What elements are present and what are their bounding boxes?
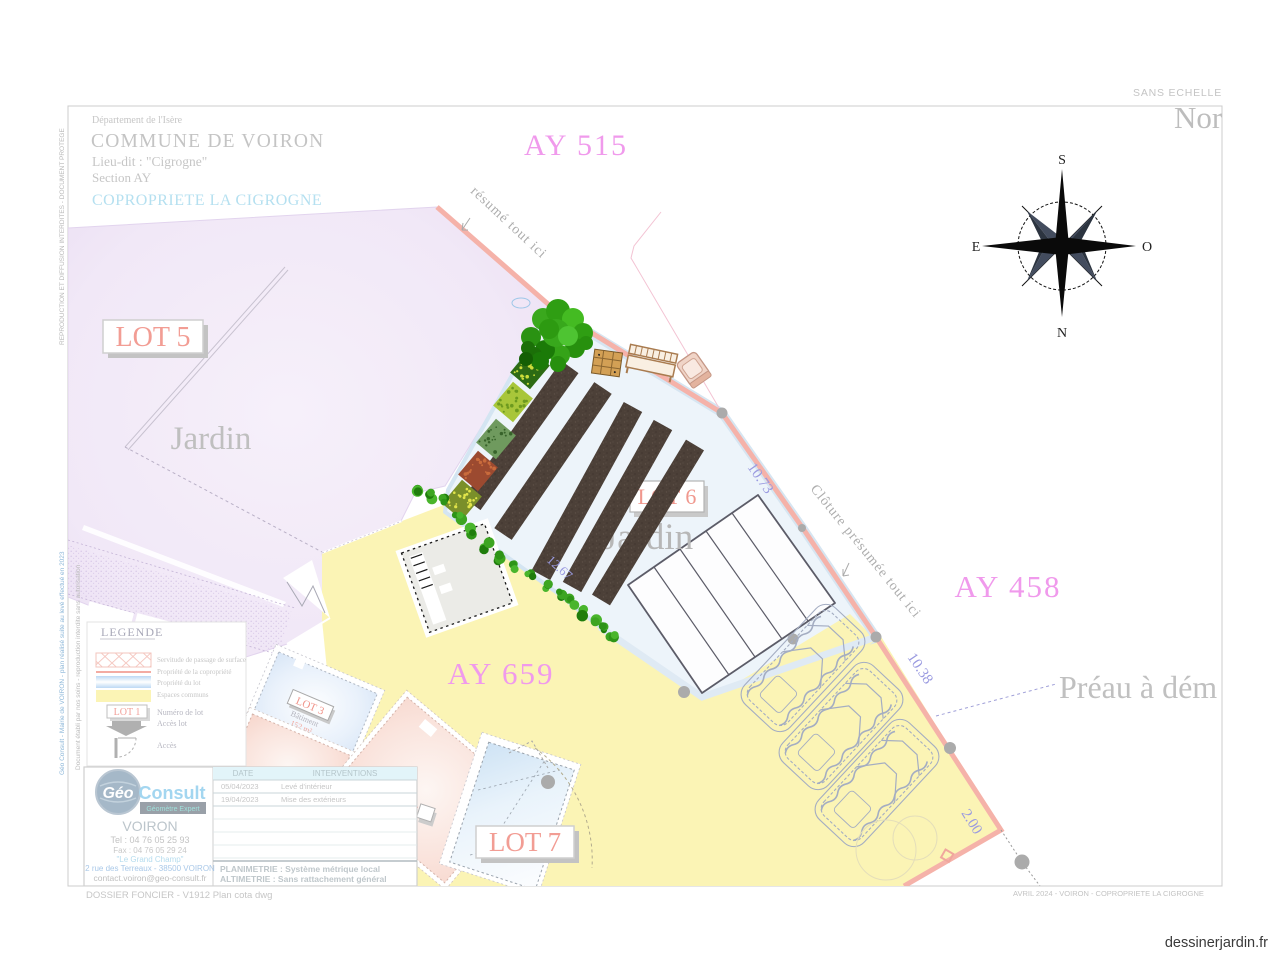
svg-text:E: E — [972, 240, 981, 255]
svg-text:COMMUNE DE VOIRON: COMMUNE DE VOIRON — [91, 131, 324, 152]
svg-text:LOT 7: LOT 7 — [489, 827, 561, 857]
svg-text:Espaces communs: Espaces communs — [157, 691, 209, 699]
svg-text:O: O — [1142, 240, 1152, 255]
svg-text:COPROPRIETE LA CIGROGNE: COPROPRIETE LA CIGROGNE — [92, 192, 322, 209]
svg-text:DOSSIER FONCIER - V1912 Plan: DOSSIER FONCIER - V1912 Plan cota dwg — [86, 890, 272, 901]
svg-text:AY 458: AY 458 — [954, 569, 1061, 604]
svg-text:dessinerjardin.fr: dessinerjardin.fr — [1165, 935, 1268, 951]
svg-text:Consult: Consult — [139, 783, 206, 803]
svg-text:Préau à dém: Préau à dém — [1059, 669, 1217, 705]
svg-text:"Le Grand Champ": "Le Grand Champ" — [116, 855, 183, 864]
svg-text:Document établi par nos soins: Document établi par nos soins - reproduc… — [75, 564, 82, 770]
svg-text:05/04/2023: 05/04/2023 — [221, 782, 259, 791]
svg-text:Fax : 04 76 05 29 24: Fax : 04 76 05 29 24 — [113, 846, 187, 855]
svg-text:Propriété du lot: Propriété du lot — [157, 679, 201, 687]
svg-text:Section AY: Section AY — [92, 170, 152, 185]
svg-text:SANS ECHELLE: SANS ECHELLE — [1133, 87, 1222, 99]
svg-text:DATE: DATE — [233, 769, 254, 778]
svg-text:contact.voiron@geo-consult.fr: contact.voiron@geo-consult.fr — [93, 873, 206, 883]
svg-text:Géo Consult - Mairie de VOIRON: Géo Consult - Mairie de VOIRON - plan ré… — [59, 551, 66, 775]
svg-text:Géo: Géo — [102, 785, 133, 802]
svg-text:VOIRON: VOIRON — [122, 818, 177, 834]
svg-text:ALTIMETRIE : Sans rattachemen: ALTIMETRIE : Sans rattachement général — [220, 874, 387, 884]
svg-text:Géomètre Expert: Géomètre Expert — [146, 806, 199, 813]
svg-text:AY 659: AY 659 — [447, 656, 554, 691]
svg-text:2 rue des Terreaux - 38500 VOI: 2 rue des Terreaux - 38500 VOIRON — [85, 864, 215, 873]
svg-text:Propriété de la copropriété: Propriété de la copropriété — [157, 668, 231, 676]
svg-text:AY 515: AY 515 — [524, 129, 628, 162]
svg-text:S: S — [1058, 153, 1066, 168]
svg-text:Servitude de passage de surfac: Servitude de passage de surface — [157, 656, 246, 664]
svg-text:Jardin: Jardin — [171, 421, 252, 457]
svg-text:Tel : 04 76 05 25 93: Tel : 04 76 05 25 93 — [110, 835, 189, 845]
svg-text:Numéro de lot: Numéro de lot — [157, 708, 204, 717]
svg-text:LOT 5: LOT 5 — [116, 322, 191, 353]
svg-text:AVRIL 2024 - VOIRON - COPROPRI: AVRIL 2024 - VOIRON - COPROPRIETE LA CIG… — [1013, 889, 1204, 898]
svg-text:Accès lot: Accès lot — [157, 719, 188, 728]
svg-text:INTERVENTIONS: INTERVENTIONS — [313, 769, 378, 778]
svg-text:Lieu-dit : "Cigrogne": Lieu-dit : "Cigrogne" — [92, 154, 207, 169]
svg-text:Département de l'Isère: Département de l'Isère — [92, 115, 183, 126]
svg-text:N: N — [1057, 326, 1067, 341]
svg-text:PLANIMETRIE : Système métriqu: PLANIMETRIE : Système métrique local — [220, 864, 380, 874]
svg-text:LEGENDE: LEGENDE — [101, 625, 163, 639]
svg-text:Mise des extérieurs: Mise des extérieurs — [281, 795, 346, 804]
svg-text:19/04/2023: 19/04/2023 — [221, 795, 259, 804]
svg-text:LOT 1: LOT 1 — [114, 707, 141, 718]
svg-text:REPRODUCTION ET DIFFUSION INTE: REPRODUCTION ET DIFFUSION INTERDITES - D… — [59, 128, 66, 345]
svg-text:Accès: Accès — [157, 741, 177, 750]
svg-text:Levé d'intérieur: Levé d'intérieur — [281, 782, 333, 791]
